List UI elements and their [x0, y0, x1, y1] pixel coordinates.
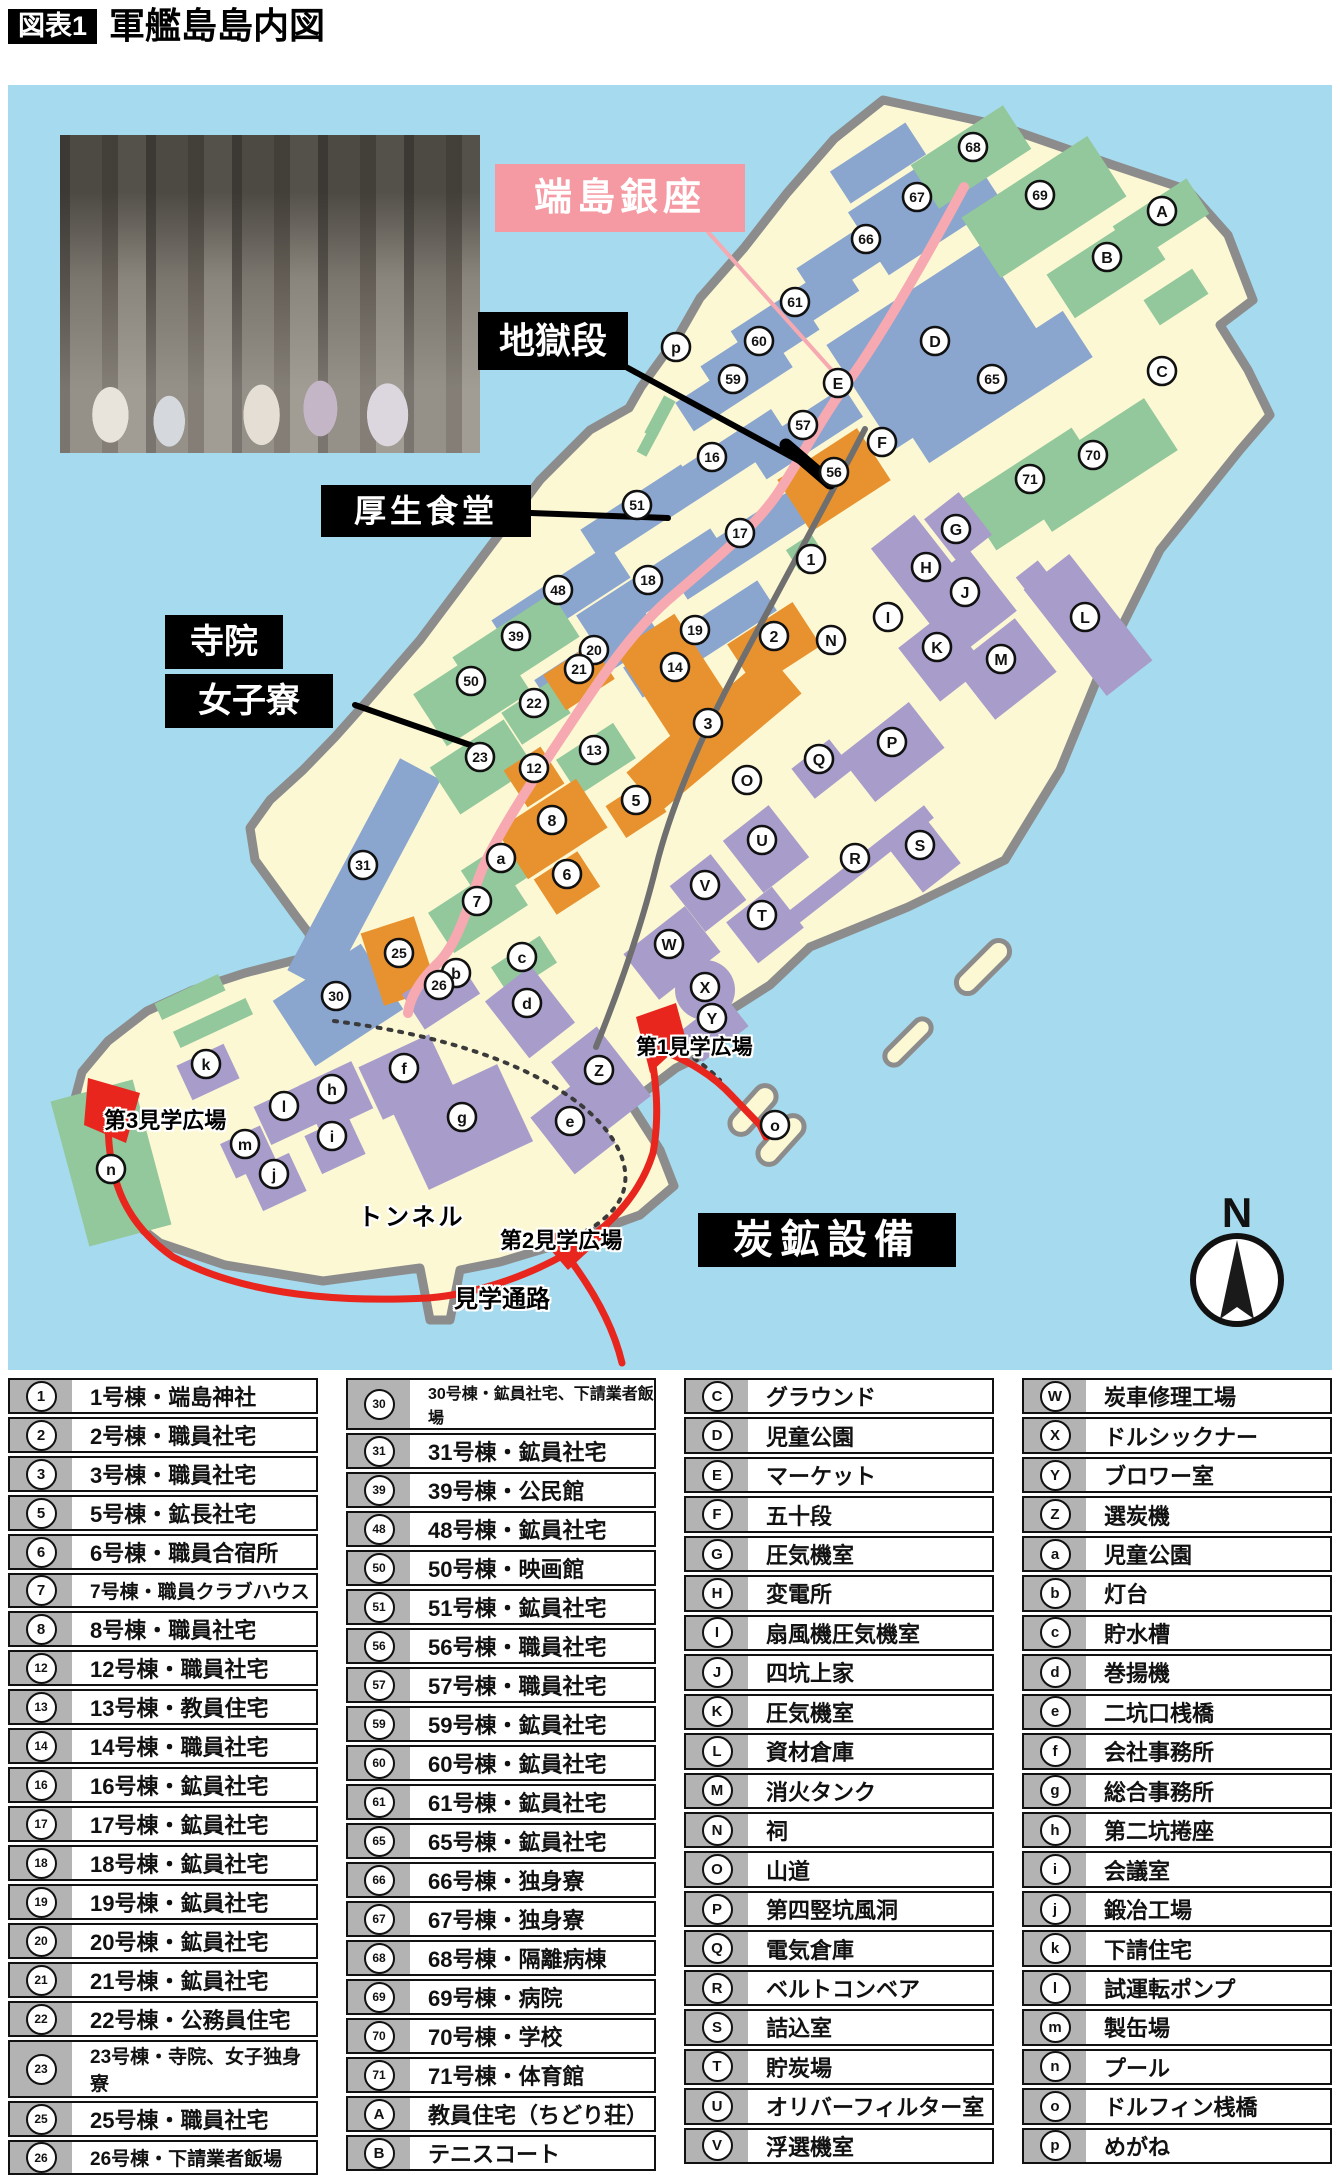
legend-row: 4848号棟・鉱員社宅: [346, 1511, 656, 1547]
svg-text:g: g: [457, 1110, 467, 1127]
map-marker-65: 65: [978, 365, 1006, 393]
legend-marker-19: 19: [26, 1887, 57, 1918]
legend-row: 1414号棟・職員社宅: [8, 1728, 318, 1764]
map-marker-31: 31: [349, 851, 377, 879]
svg-text:2: 2: [770, 629, 779, 646]
legend-row: 6969号棟・病院: [346, 1979, 656, 2015]
legend-marker-cell: 16: [10, 1769, 77, 1801]
map-marker-56: 56: [820, 458, 848, 486]
legend-row: k下請住宅: [1022, 1930, 1332, 1966]
svg-text:12: 12: [526, 760, 542, 776]
legend-label: 3号棟・職員社宅: [77, 1458, 316, 1490]
legend-marker-cell: S: [686, 2011, 753, 2043]
legend-marker-48: 48: [364, 1514, 395, 1545]
legend-row: Uオリバーフィルター室: [684, 2088, 994, 2124]
legend-marker-cell: J: [686, 1656, 753, 1688]
legend-row: 6060号棟・鉱員社宅: [346, 1745, 656, 1781]
legend-label: 21号棟・鉱員社宅: [77, 1964, 316, 1996]
legend-marker-cell: 1: [10, 1380, 77, 1412]
map-marker-a: a: [487, 844, 515, 872]
map-marker-3: 3: [694, 709, 722, 737]
label-tunnel: トンネル: [358, 1197, 466, 1232]
legend-marker-m: m: [1040, 2012, 1071, 2043]
legend-row: 5050号棟・映画館: [346, 1550, 656, 1586]
legend-marker-Y: Y: [1040, 1460, 1071, 1491]
svg-text:Q: Q: [813, 752, 825, 769]
map-marker-X: X: [691, 973, 719, 1001]
legend-row: T貯炭場: [684, 2049, 994, 2085]
legend-label: 二坑口桟橋: [1091, 1696, 1330, 1728]
legend-row: 88号棟・職員社宅: [8, 1611, 318, 1647]
legend-marker-cell: 7: [10, 1575, 77, 1606]
legend-marker-cell: P: [686, 1893, 753, 1925]
label-plaza3: 第3見学広場: [104, 1103, 226, 1135]
legend-marker-c: c: [1040, 1617, 1071, 1648]
legend-label: 灯台: [1091, 1577, 1330, 1609]
map-marker-V: V: [691, 871, 719, 899]
legend-marker-cell: H: [686, 1577, 753, 1609]
legend-marker-cell: A: [348, 2098, 415, 2130]
legend-row: 2525号棟・職員社宅: [8, 2101, 318, 2137]
legend-marker-cell: n: [1024, 2051, 1091, 2083]
svg-text:N: N: [825, 633, 837, 650]
map-marker-k: k: [192, 1050, 220, 1078]
svg-text:P: P: [887, 735, 898, 752]
svg-text:Z: Z: [594, 1063, 604, 1080]
legend-marker-cell: W: [1024, 1380, 1091, 1412]
svg-text:20: 20: [586, 642, 602, 658]
map-marker-51: 51: [623, 491, 651, 519]
legend-marker-cell: U: [686, 2090, 753, 2122]
legend-marker-cell: F: [686, 1498, 753, 1530]
legend-row: V浮選機室: [684, 2128, 994, 2164]
legend-label: 20号棟・鉱員社宅: [77, 1925, 316, 1957]
legend-label: 17号棟・鉱員社宅: [77, 1808, 316, 1840]
legend-marker-6: 6: [26, 1537, 57, 1568]
svg-text:1: 1: [807, 552, 816, 569]
svg-text:67: 67: [909, 189, 925, 205]
legend-marker-cell: c: [1024, 1617, 1091, 1649]
legend-label: 巻揚機: [1091, 1656, 1330, 1688]
legend-row: h第二坑捲座: [1022, 1812, 1332, 1848]
map-marker-50: 50: [457, 667, 485, 695]
legend-marker-cell: 19: [10, 1886, 77, 1918]
svg-text:69: 69: [1032, 187, 1048, 203]
legend-marker-14: 14: [26, 1731, 57, 1762]
legend-marker-cell: I: [686, 1617, 753, 1649]
svg-text:39: 39: [508, 628, 524, 644]
legend-row: 7070号棟・学校: [346, 2018, 656, 2054]
legend-marker-cell: D: [686, 1419, 753, 1451]
legend-label: ブロワー室: [1091, 1459, 1330, 1491]
legend-label: ベルトコンベア: [753, 1972, 992, 2004]
legend-marker-Z: Z: [1040, 1499, 1071, 1530]
legend-marker-cell: 26: [10, 2142, 77, 2173]
legend-row: 2121号棟・鉱員社宅: [8, 1962, 318, 1998]
map-marker-R: R: [841, 844, 869, 872]
legend-marker-50: 50: [364, 1553, 395, 1584]
legend-marker-71: 71: [364, 2060, 395, 2091]
legend-marker-cell: K: [686, 1696, 753, 1728]
legend-marker-cell: p: [1024, 2130, 1091, 2162]
legend-row: F五十段: [684, 1496, 994, 1532]
svg-text:50: 50: [463, 673, 479, 689]
legend-label: 消火タンク: [753, 1775, 992, 1807]
legend-row: I扇風機圧気機室: [684, 1615, 994, 1651]
svg-text:E: E: [833, 376, 844, 393]
compass-n-label: N: [1222, 1189, 1252, 1236]
svg-text:17: 17: [732, 525, 748, 541]
legend-label: 48号棟・鉱員社宅: [415, 1513, 654, 1545]
legend-label: 5号棟・鉱長社宅: [77, 1497, 316, 1529]
map-marker-6: 6: [553, 860, 581, 888]
svg-text:I: I: [886, 610, 890, 627]
map-marker-O: O: [733, 766, 761, 794]
legend-marker-cell: 6: [10, 1536, 77, 1568]
legend-marker-65: 65: [364, 1826, 395, 1857]
legend-label: 23号棟・寺院、女子独身寮: [77, 2042, 316, 2096]
map-marker-g: g: [448, 1103, 476, 1131]
legend-row: H変電所: [684, 1575, 994, 1611]
map-marker-67: 67: [903, 183, 931, 211]
legend-row: Q電気倉庫: [684, 1930, 994, 1966]
svg-text:S: S: [915, 838, 926, 855]
legend-marker-cell: 18: [10, 1847, 77, 1879]
legend-row: pめがね: [1022, 2128, 1332, 2164]
legend-label: 6号棟・職員合宿所: [77, 1536, 316, 1568]
map-marker-T: T: [748, 901, 776, 929]
legend-marker-h: h: [1040, 1815, 1071, 1846]
svg-text:m: m: [238, 1137, 252, 1154]
svg-text:J: J: [961, 585, 970, 602]
legend-row: G圧気機室: [684, 1536, 994, 1572]
legend-marker-f: f: [1040, 1736, 1071, 1767]
svg-text:68: 68: [965, 139, 981, 155]
legend-label: 19号棟・鉱員社宅: [77, 1886, 316, 1918]
legend-label: 2号棟・職員社宅: [77, 1419, 316, 1451]
legend-row: 5757号棟・職員社宅: [346, 1667, 656, 1703]
legend-label: 選炭機: [1091, 1498, 1330, 1530]
svg-text:3: 3: [704, 716, 713, 733]
map-marker-G: G: [942, 515, 970, 543]
legend-row: 6868号棟・隔離病棟: [346, 1940, 656, 1976]
legend-marker-cell: 5: [10, 1497, 77, 1529]
legend-marker-22: 22: [26, 2004, 57, 2035]
map-marker-j: j: [260, 1160, 288, 1188]
svg-text:V: V: [700, 878, 711, 895]
legend-marker-61: 61: [364, 1787, 395, 1818]
legend-marker-D: D: [702, 1420, 733, 1451]
legend-marker-cell: h: [1024, 1814, 1091, 1846]
legend-marker-26: 26: [26, 2142, 57, 2173]
legend-label: 65号棟・鉱員社宅: [415, 1825, 654, 1857]
legend-label: 31号棟・鉱員社宅: [415, 1435, 654, 1467]
legend-label: 1号棟・端島神社: [77, 1380, 316, 1412]
legend-marker-20: 20: [26, 1926, 57, 1957]
map-marker-18: 18: [634, 566, 662, 594]
map-marker-J: J: [951, 578, 979, 606]
legend-row: 6666号棟・独身寮: [346, 1862, 656, 1898]
legend-marker-cell: 57: [348, 1669, 415, 1701]
legend-marker-o: o: [1040, 2091, 1071, 2122]
legend-label: 69号棟・病院: [415, 1981, 654, 2013]
legend-marker-p: p: [1040, 2130, 1071, 2161]
legend-column: CグラウンドD児童公園EマーケットF五十段G圧気機室H変電所I扇風機圧気機室J四…: [684, 1378, 994, 2164]
svg-text:H: H: [920, 560, 932, 577]
svg-text:59: 59: [725, 371, 741, 387]
legend-label: 炭車修理工場: [1091, 1380, 1330, 1412]
legend-label: 59号棟・鉱員社宅: [415, 1708, 654, 1740]
map-marker-12: 12: [520, 754, 548, 782]
legend-label: 26号棟・下請業者飯場: [77, 2142, 316, 2173]
map-marker-o: o: [761, 1111, 789, 1139]
legend-label: 57号棟・職員社宅: [415, 1669, 654, 1701]
legend-row: i会議室: [1022, 1851, 1332, 1887]
legend-marker-R: R: [702, 1973, 733, 2004]
legend-marker-cell: N: [686, 1814, 753, 1846]
legend-label: ドルフィン桟橋: [1091, 2090, 1330, 2122]
legend-marker-cell: l: [1024, 1972, 1091, 2004]
legend-label: 22号棟・公務員住宅: [77, 2003, 316, 2035]
legend-marker-cell: 59: [348, 1708, 415, 1740]
legend-marker-cell: Y: [1024, 1459, 1091, 1491]
map-marker-W: W: [655, 930, 683, 958]
svg-text:R: R: [849, 851, 861, 868]
legend-marker-16: 16: [26, 1770, 57, 1801]
legend-label: 児童公園: [753, 1419, 992, 1451]
legend-row: d巻揚機: [1022, 1654, 1332, 1690]
legend-label: 61号棟・鉱員社宅: [415, 1786, 654, 1818]
svg-text:56: 56: [826, 464, 842, 480]
legend-row: 66号棟・職員合宿所: [8, 1534, 318, 1570]
map-marker-16: 16: [698, 443, 726, 471]
map-marker-C: C: [1148, 357, 1176, 385]
svg-text:O: O: [741, 773, 753, 790]
legend-label: 7号棟・職員クラブハウス: [77, 1575, 316, 1606]
legend-row: c貯水槽: [1022, 1615, 1332, 1651]
legend-marker-cell: 25: [10, 2103, 77, 2135]
figure-tag: 図表1: [8, 9, 97, 44]
legend-label: 71号棟・体育館: [415, 2059, 654, 2091]
legend-marker-cell: 2: [10, 1419, 77, 1451]
svg-text:e: e: [566, 1114, 575, 1131]
legend-marker-cell: Z: [1024, 1498, 1091, 1530]
map-marker-39: 39: [502, 622, 530, 650]
legend-label: 会議室: [1091, 1853, 1330, 1885]
legend-label: 第四竪坑風洞: [753, 1893, 992, 1925]
callout-jigokudan: 地獄段: [478, 312, 628, 370]
legend-marker-1: 1: [26, 1381, 57, 1412]
svg-text:W: W: [661, 937, 677, 954]
legend-row: 3939号棟・公民館: [346, 1472, 656, 1508]
map-marker-48: 48: [544, 576, 572, 604]
legend-label: 67号棟・独身寮: [415, 1903, 654, 1935]
legend-marker-C: C: [702, 1381, 733, 1412]
svg-text:31: 31: [355, 857, 371, 873]
legend-row: 1717号棟・鉱員社宅: [8, 1806, 318, 1842]
legend-label: 製缶場: [1091, 2011, 1330, 2043]
map-marker-Z: Z: [585, 1056, 613, 1084]
legend-row: W炭車修理工場: [1022, 1378, 1332, 1414]
legend-row: 11号棟・端島神社: [8, 1378, 318, 1414]
map-marker-61: 61: [781, 288, 809, 316]
legend-label: 会社事務所: [1091, 1735, 1330, 1767]
legend-label: 68号棟・隔離病棟: [415, 1942, 654, 1974]
legend-marker-57: 57: [364, 1670, 395, 1701]
legend-marker-cell: 60: [348, 1747, 415, 1779]
legend-marker-cell: 17: [10, 1808, 77, 1840]
legend-row: Cグラウンド: [684, 1378, 994, 1414]
legend-row: l試運転ポンプ: [1022, 1970, 1332, 2006]
legend-row: nプール: [1022, 2049, 1332, 2085]
legend-row: j鍛冶工場: [1022, 1891, 1332, 1927]
legend-marker-L: L: [702, 1736, 733, 1767]
legend-row: J四坑上家: [684, 1654, 994, 1690]
map-marker-Q: Q: [805, 745, 833, 773]
callout-kosei-shokudo: 厚生食堂: [321, 485, 531, 537]
svg-text:61: 61: [787, 294, 803, 310]
legend-marker-H: H: [702, 1578, 733, 1609]
map-marker-l: l: [270, 1092, 298, 1120]
svg-text:G: G: [950, 522, 962, 539]
map-marker-30: 30: [322, 982, 350, 1010]
svg-text:14: 14: [667, 659, 683, 675]
legend-row: S詰込室: [684, 2009, 994, 2045]
legend-label: 60号棟・鉱員社宅: [415, 1747, 654, 1779]
legend-marker-cell: 61: [348, 1786, 415, 1818]
legend-row: Rベルトコンベア: [684, 1970, 994, 2006]
legend-label: 下請住宅: [1091, 1932, 1330, 1964]
legend-marker-cell: e: [1024, 1696, 1091, 1728]
map-marker-59: 59: [719, 365, 747, 393]
map-marker-i: i: [318, 1122, 346, 1150]
legend-label: 五十段: [753, 1498, 992, 1530]
svg-text:M: M: [994, 652, 1007, 669]
legend-marker-cell: 48: [348, 1513, 415, 1545]
legend-row: 33号棟・職員社宅: [8, 1456, 318, 1492]
legend-marker-V: V: [702, 2130, 733, 2161]
legend-marker-cell: M: [686, 1775, 753, 1807]
map-marker-1: 1: [797, 545, 825, 573]
legend-marker-cell: g: [1024, 1775, 1091, 1807]
legend-marker-cell: E: [686, 1459, 753, 1491]
legend-marker-cell: B: [348, 2137, 415, 2169]
map-marker-K: K: [923, 633, 951, 661]
legend-marker-cell: R: [686, 1972, 753, 2004]
legend-row: 6161号棟・鉱員社宅: [346, 1784, 656, 1820]
legend-label: グラウンド: [753, 1380, 992, 1412]
legend-marker-E: E: [702, 1460, 733, 1491]
legend-marker-cell: m: [1024, 2011, 1091, 2043]
legend-marker-31: 31: [364, 1436, 395, 1467]
map-marker-N: N: [817, 626, 845, 654]
svg-text:71: 71: [1022, 471, 1038, 487]
legend-marker-cell: k: [1024, 1932, 1091, 1964]
legend-marker-68: 68: [364, 1943, 395, 1974]
map-marker-f: f: [390, 1054, 418, 1082]
legend-marker-X: X: [1040, 1420, 1071, 1451]
svg-text:21: 21: [571, 661, 587, 677]
svg-text:l: l: [282, 1099, 286, 1116]
legend-label: 第二坑捲座: [1091, 1814, 1330, 1846]
svg-text:U: U: [756, 833, 768, 850]
svg-text:F: F: [877, 435, 887, 452]
legend-label: 総合事務所: [1091, 1775, 1330, 1807]
svg-text:8: 8: [548, 813, 557, 830]
legend-marker-U: U: [702, 2091, 733, 2122]
legend-marker-cell: 50: [348, 1552, 415, 1584]
legend-row: 3030号棟・鉱員社宅、下請業者飯場: [346, 1378, 656, 1430]
map-marker-L: L: [1071, 603, 1099, 631]
legend-column: 3030号棟・鉱員社宅、下請業者飯場3131号棟・鉱員社宅3939号棟・公民館4…: [346, 1378, 656, 2164]
legend-marker-17: 17: [26, 1809, 57, 1840]
map-marker-I: I: [874, 603, 902, 631]
legend-label: 教員住宅（ちどり荘）: [415, 2098, 654, 2130]
map-marker-57: 57: [789, 411, 817, 439]
svg-text:k: k: [202, 1057, 211, 1074]
page-title: 軍艦島島内図: [109, 8, 325, 44]
legend-row: b灯台: [1022, 1575, 1332, 1611]
svg-text:d: d: [522, 996, 532, 1013]
map-marker-n: n: [97, 1155, 125, 1183]
legend-marker-cell: 51: [348, 1591, 415, 1623]
legend-label: 14号棟・職員社宅: [77, 1730, 316, 1762]
map-marker-F: F: [868, 428, 896, 456]
legend-column: W炭車修理工場XドルシックナーYブロワー室Z選炭機a児童公園b灯台c貯水槽d巻揚…: [1022, 1378, 1332, 2164]
map-marker-c: c: [508, 943, 536, 971]
figure-header: 図表1 軍艦島島内図: [8, 8, 325, 44]
legend-label: 変電所: [753, 1577, 992, 1609]
map-marker-70: 70: [1079, 441, 1107, 469]
legend-row: 2626号棟・下請業者飯場: [8, 2140, 318, 2175]
svg-text:n: n: [106, 1162, 116, 1179]
map-marker-19: 19: [681, 616, 709, 644]
legend-marker-d: d: [1040, 1657, 1071, 1688]
svg-text:j: j: [271, 1167, 276, 1184]
map-marker-68: 68: [959, 133, 987, 161]
legend-label: 児童公園: [1091, 1538, 1330, 1570]
map-marker-P: P: [878, 728, 906, 756]
legend-marker-59: 59: [364, 1709, 395, 1740]
legend-marker-cell: 30: [348, 1380, 415, 1428]
svg-text:h: h: [327, 1082, 337, 1099]
legend-marker-39: 39: [364, 1475, 395, 1506]
legend-marker-cell: 65: [348, 1825, 415, 1857]
legend-label: 山道: [753, 1853, 992, 1885]
legend-label: 詰込室: [753, 2011, 992, 2043]
map-marker-S: S: [906, 831, 934, 859]
label-plaza1: 第1見学広場: [636, 1031, 753, 1061]
svg-text:K: K: [931, 640, 943, 657]
svg-text:30: 30: [328, 988, 344, 1004]
legend-label: オリバーフィルター室: [753, 2090, 992, 2122]
legend-marker-12: 12: [26, 1653, 57, 1684]
map-marker-d: d: [513, 989, 541, 1017]
legend-marker-cell: 68: [348, 1942, 415, 1974]
legend-row: D児童公園: [684, 1417, 994, 1453]
legend-label: ドルシックナー: [1091, 1419, 1330, 1451]
map-marker-D: D: [921, 327, 949, 355]
legend-row: oドルフィン桟橋: [1022, 2088, 1332, 2124]
legend-marker-cell: 20: [10, 1925, 77, 1957]
island-map: 686769A66B6160Dp59EC6557F165670715117G1H…: [8, 85, 1332, 1370]
map-marker-B: B: [1093, 243, 1121, 271]
legend-label: 13号棟・教員住宅: [77, 1691, 316, 1723]
legend-marker-e: e: [1040, 1696, 1071, 1727]
legend-marker-18: 18: [26, 1848, 57, 1879]
legend-label: 16号棟・鉱員社宅: [77, 1769, 316, 1801]
legend-marker-cell: 71: [348, 2059, 415, 2091]
